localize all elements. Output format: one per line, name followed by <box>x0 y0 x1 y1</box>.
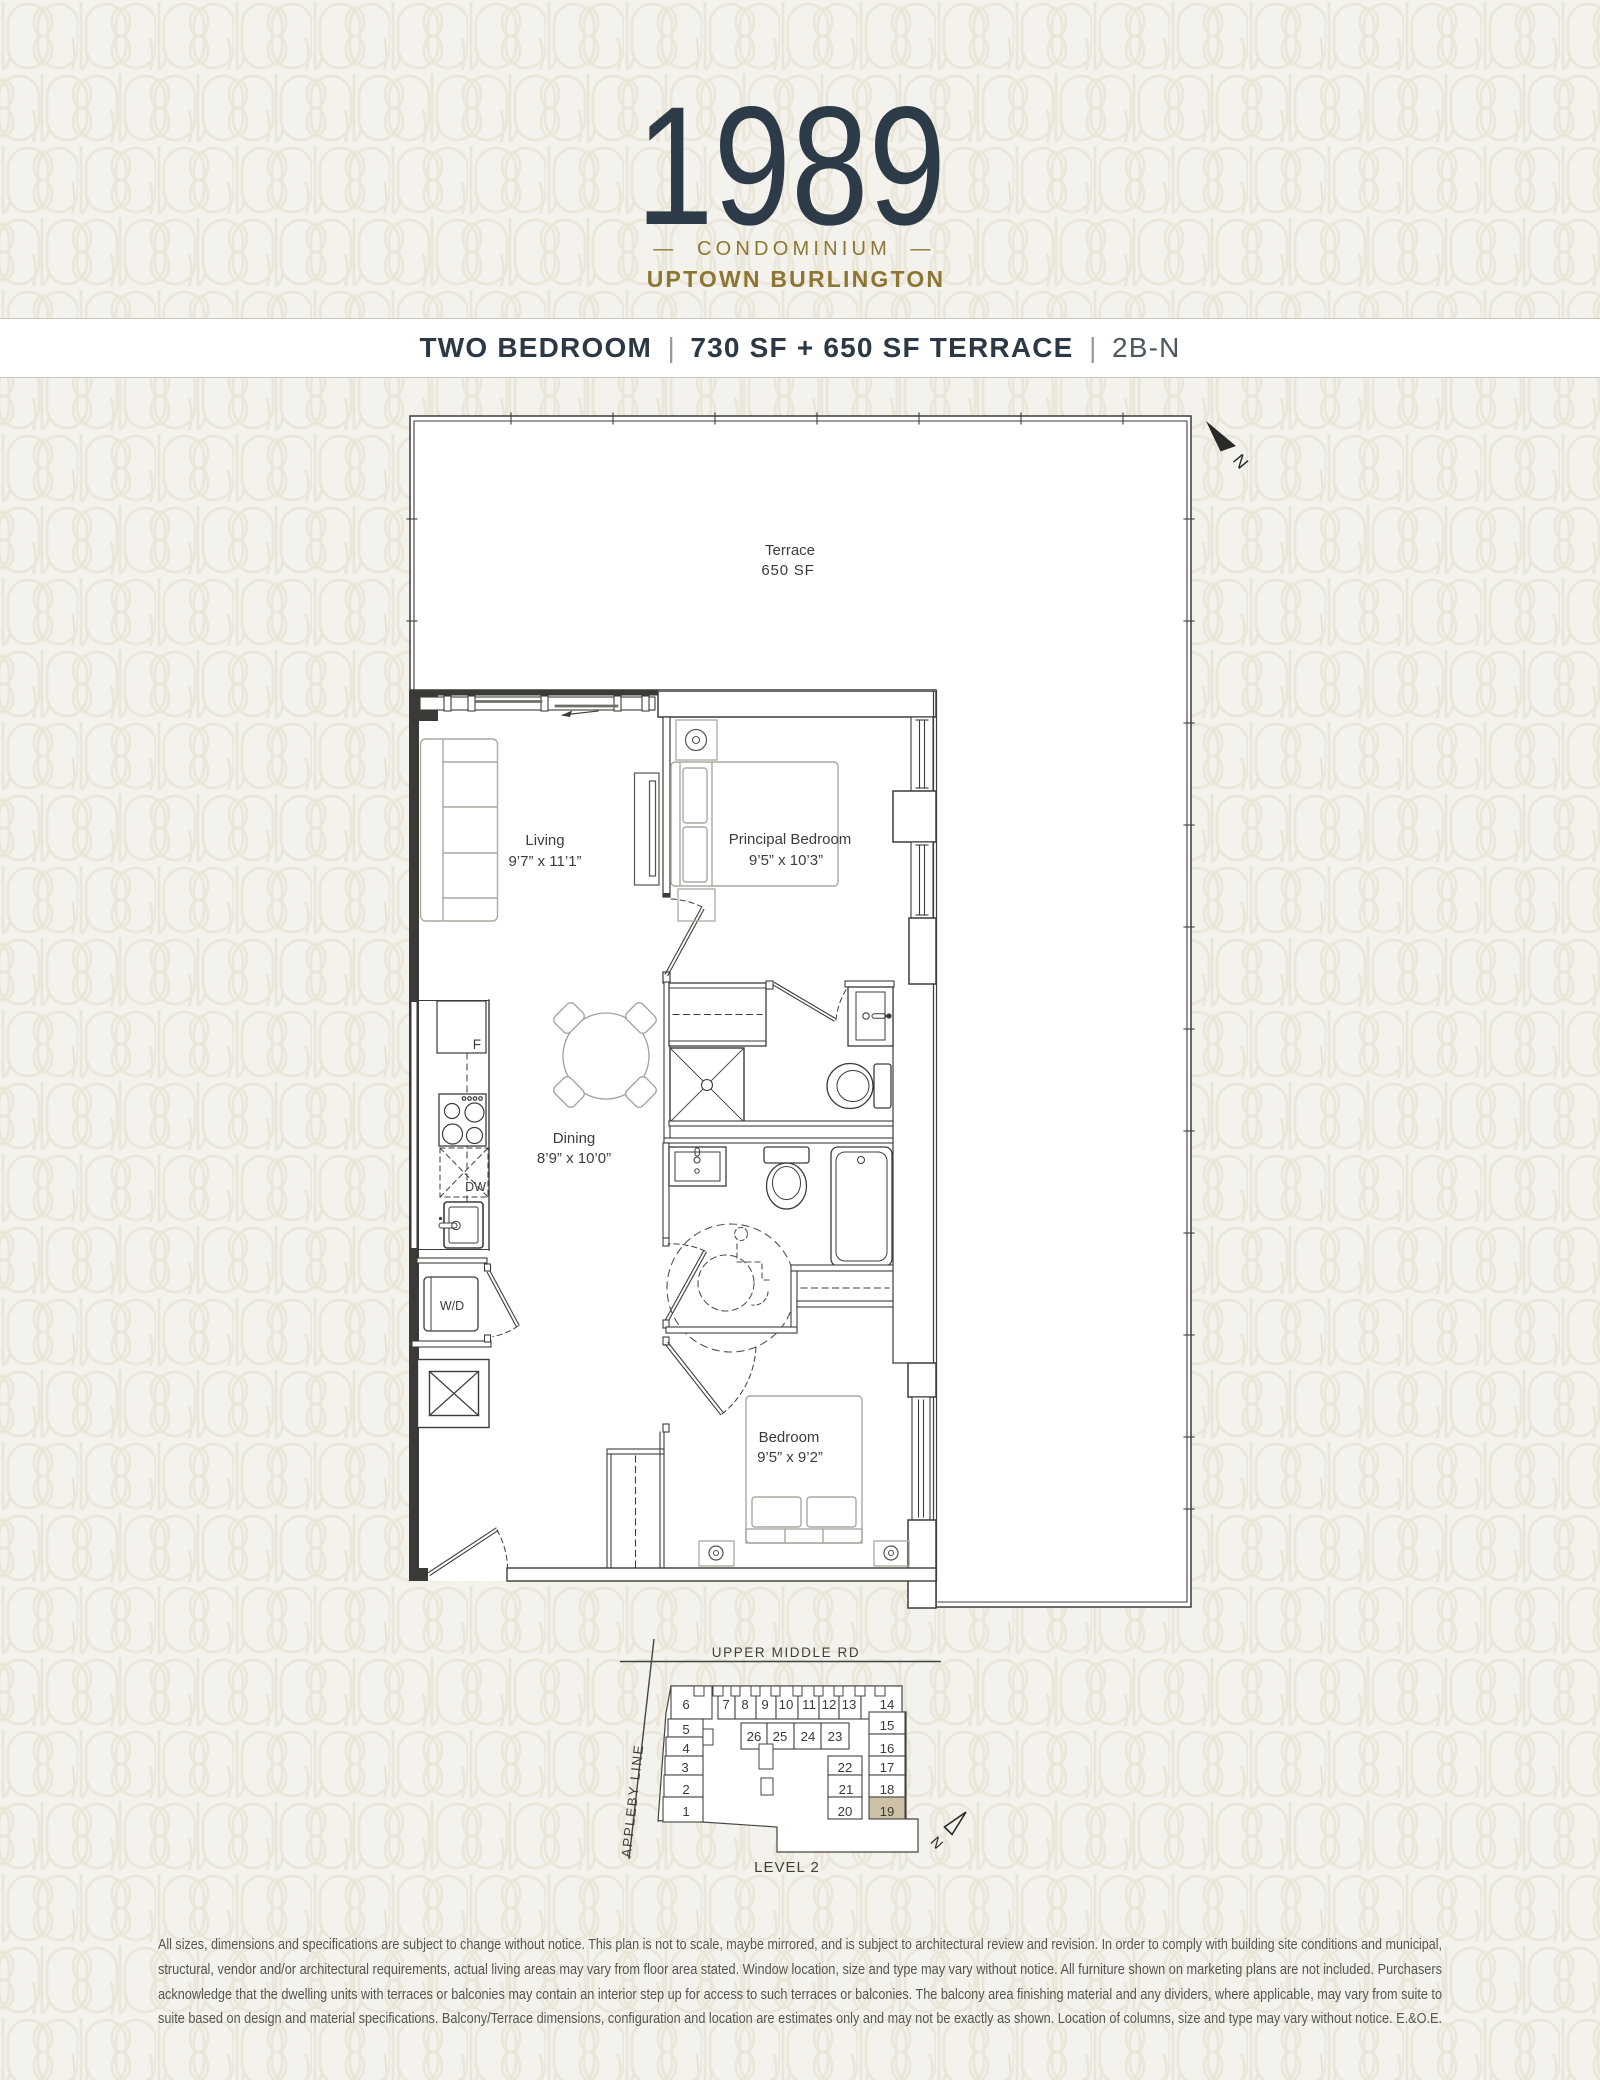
svg-text:4: 4 <box>682 1741 689 1756</box>
svg-text:650 SF: 650 SF <box>761 562 814 579</box>
svg-text:8: 8 <box>741 1697 748 1712</box>
svg-text:18: 18 <box>880 1782 895 1797</box>
svg-text:9: 9 <box>761 1697 768 1712</box>
svg-text:Dining: Dining <box>553 1130 596 1147</box>
svg-text:W/D: W/D <box>440 1299 464 1313</box>
svg-text:1: 1 <box>682 1804 689 1819</box>
svg-text:acknowledge that the dwelling: acknowledge that the dwelling units with… <box>158 1986 1442 2003</box>
svg-text:Bedroom: Bedroom <box>759 1429 820 1446</box>
svg-text:UPPER MIDDLE RD: UPPER MIDDLE RD <box>712 1645 861 1660</box>
svg-text:3: 3 <box>681 1760 688 1775</box>
svg-text:16: 16 <box>880 1741 895 1756</box>
svg-text:17: 17 <box>880 1760 895 1775</box>
svg-text:Living: Living <box>525 832 564 849</box>
svg-text:suite based on design and mate: suite based on design and material speci… <box>158 2010 1442 2027</box>
svg-text:2: 2 <box>682 1782 689 1797</box>
svg-text:UPTOWN BURLINGTON: UPTOWN BURLINGTON <box>647 266 946 292</box>
svg-text:20: 20 <box>838 1804 853 1819</box>
svg-text:13: 13 <box>842 1697 857 1712</box>
svg-text:21: 21 <box>839 1782 854 1797</box>
svg-text:23: 23 <box>828 1729 843 1744</box>
svg-text:LEVEL 2: LEVEL 2 <box>754 1859 820 1876</box>
svg-text:6: 6 <box>682 1697 689 1712</box>
svg-text:26: 26 <box>747 1729 762 1744</box>
svg-text:9’5” x 10’3”: 9’5” x 10’3” <box>749 852 823 869</box>
svg-text:1989: 1989 <box>636 71 946 260</box>
svg-text:19: 19 <box>880 1804 895 1819</box>
svg-text:22: 22 <box>838 1760 853 1775</box>
svg-text:24: 24 <box>801 1729 816 1744</box>
svg-text:Principal Bedroom: Principal Bedroom <box>729 831 852 848</box>
svg-text:15: 15 <box>880 1718 895 1733</box>
svg-text:11: 11 <box>802 1697 816 1712</box>
svg-text:TWO BEDROOM | 730 SF + 650 S: TWO BEDROOM | 730 SF + 650 SF TERRACE | … <box>419 332 1180 363</box>
svg-text:7: 7 <box>722 1697 729 1712</box>
svg-text:5: 5 <box>682 1722 689 1737</box>
svg-text:Terrace: Terrace <box>765 542 815 559</box>
svg-text:9’5” x 9’2”: 9’5” x 9’2” <box>757 1449 823 1466</box>
svg-text:structural, vendor and/or arch: structural, vendor and/or architectural … <box>158 1961 1442 1978</box>
svg-text:8’9” x 10’0”: 8’9” x 10’0” <box>537 1150 611 1167</box>
svg-text:14: 14 <box>880 1697 895 1712</box>
svg-text:25: 25 <box>773 1729 788 1744</box>
svg-text:DW: DW <box>465 1180 486 1194</box>
svg-text:10: 10 <box>779 1697 794 1712</box>
svg-text:All sizes, dimensions and spec: All sizes, dimensions and specifications… <box>158 1936 1442 1953</box>
svg-text:— CONDOMINIUM —: — CONDOMINIUM — <box>653 238 934 260</box>
svg-text:12: 12 <box>822 1697 837 1712</box>
svg-text:9’7” x 11’1”: 9’7” x 11’1” <box>508 853 581 870</box>
svg-text:F: F <box>473 1037 481 1052</box>
